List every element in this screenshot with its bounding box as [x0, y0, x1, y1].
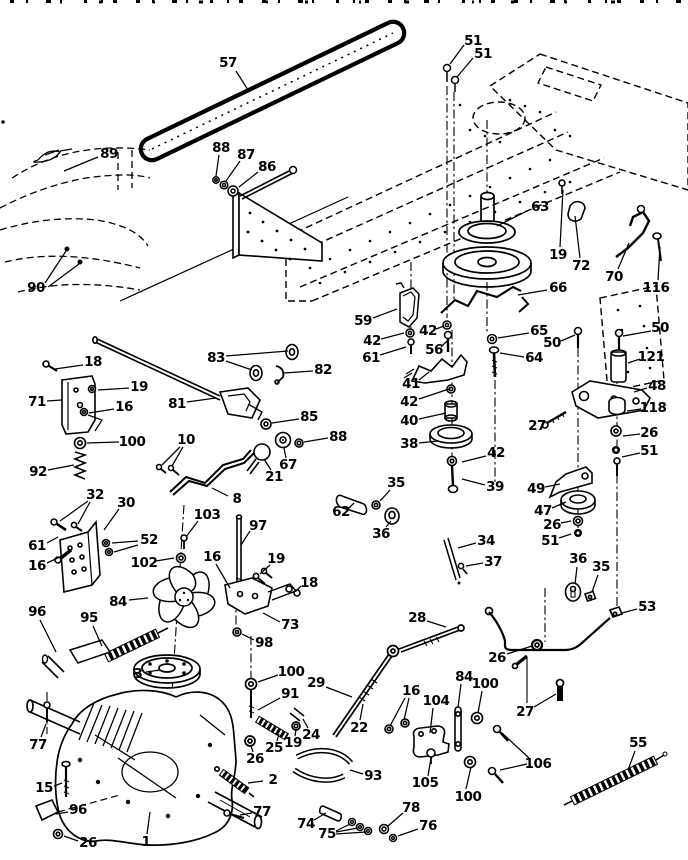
part-callout-86: 86	[258, 159, 276, 175]
part-callout-82: 82	[314, 362, 332, 378]
exploded-parts-diagram: 5751518990888786631972701166659426142566…	[0, 0, 688, 860]
leader-line-88	[216, 155, 219, 176]
part-callout-87: 87	[237, 147, 255, 163]
part-callout-50: 50	[651, 320, 669, 336]
bracket-71	[62, 376, 95, 434]
part-callout-32: 32	[86, 487, 104, 503]
rod-34-group	[444, 538, 467, 585]
part-callout-18: 18	[84, 354, 102, 370]
part-callout-51: 51	[541, 533, 559, 549]
part-callout-71: 71	[28, 394, 46, 410]
leader-line-26	[561, 521, 571, 523]
belt-keeper-59	[400, 288, 419, 327]
leader-line-77	[41, 724, 46, 737]
leader-line-103	[186, 521, 198, 537]
leader-line-74	[314, 813, 326, 820]
leader-line-87	[226, 161, 240, 181]
part-callout-95: 95	[80, 610, 98, 626]
part-callout-26: 26	[246, 751, 264, 767]
part-callout-100: 100	[455, 789, 482, 805]
part-callout-70: 70	[605, 269, 623, 285]
leader-line-81	[187, 398, 216, 402]
leader-line-35	[380, 490, 390, 501]
leader-line-27	[546, 418, 556, 423]
part-callout-28: 28	[408, 610, 426, 626]
rod-53	[489, 612, 610, 650]
part-callout-91: 91	[281, 686, 299, 702]
part-callout-42: 42	[487, 445, 505, 461]
part-callout-36: 36	[372, 526, 390, 542]
rod-86-end	[290, 167, 297, 174]
leader-line-2	[248, 781, 263, 783]
part-callout-25: 25	[265, 740, 283, 756]
part-callout-52: 52	[140, 532, 158, 548]
leader-line-26	[623, 434, 640, 436]
part-callout-62: 62	[332, 504, 350, 520]
leader-line-96	[40, 620, 56, 652]
bracket-30-group	[51, 519, 113, 592]
leader-line-32	[78, 502, 90, 524]
part-callout-56: 56	[425, 342, 443, 358]
part-callout-27: 27	[528, 418, 546, 434]
part-callout-90: 90	[27, 280, 45, 296]
part-callout-100: 100	[472, 676, 499, 692]
part-callout-104: 104	[423, 693, 450, 709]
part-callout-22: 22	[350, 720, 368, 736]
part-callout-38: 38	[400, 436, 418, 452]
part-callout-34: 34	[477, 533, 495, 549]
part-callout-49: 49	[527, 481, 545, 497]
part-callout-89: 89	[100, 146, 118, 162]
leader-line-73	[263, 613, 280, 622]
rod-66	[441, 287, 521, 313]
leader-line-16	[404, 698, 409, 720]
leader-line-39	[462, 479, 485, 485]
leader-line-90	[48, 264, 79, 287]
leader-line-98	[242, 634, 254, 640]
leader-line-100	[466, 767, 471, 789]
part-callout-61: 61	[28, 538, 46, 554]
part-callout-103: 103	[194, 507, 221, 523]
part-callout-19: 19	[549, 247, 567, 263]
part-callout-42: 42	[400, 394, 418, 410]
hardware-86-87-88	[213, 167, 297, 200]
part-callout-42: 42	[419, 323, 437, 339]
leader-line-27	[534, 694, 556, 707]
leader-line-85	[272, 419, 299, 423]
leader-line-42	[419, 389, 449, 399]
part-callout-84: 84	[455, 669, 473, 685]
part-callout-74: 74	[297, 816, 315, 832]
leader-line-83	[226, 361, 252, 370]
part-callout-39: 39	[486, 479, 504, 495]
leader-line-102	[156, 558, 174, 561]
part-callout-15: 15	[35, 780, 53, 796]
part-callout-42: 42	[363, 333, 381, 349]
leader-line-89	[64, 157, 98, 171]
leader-line-37	[466, 563, 483, 566]
part-callout-30: 30	[117, 495, 135, 511]
part-callout-40: 40	[400, 413, 418, 429]
leader-line-40	[419, 413, 446, 419]
part-callout-26: 26	[488, 650, 506, 666]
part-callout-16: 16	[28, 558, 46, 574]
part-callout-93: 93	[364, 768, 382, 784]
part-callout-85: 85	[300, 409, 318, 425]
part-callout-10: 10	[177, 432, 195, 448]
part-callout-96: 96	[69, 802, 87, 818]
leader-line-59	[373, 309, 397, 318]
hood-fastener-dot	[78, 260, 83, 265]
leader-line-22	[360, 704, 363, 720]
spring-92	[75, 452, 85, 479]
part-callout-63: 63	[531, 199, 549, 215]
part-callout-2: 2	[269, 772, 278, 788]
nut-35	[585, 592, 596, 602]
bolt-116	[653, 233, 661, 239]
part-callout-84: 84	[109, 594, 127, 610]
part-callout-88: 88	[212, 140, 230, 156]
leader-line-84	[129, 598, 148, 600]
stray-mark	[1, 120, 5, 124]
transaxle-1	[27, 690, 262, 845]
leader-line-61	[47, 537, 58, 543]
leader-line-42	[381, 333, 404, 339]
brake-linkage-group	[385, 707, 508, 783]
leader-line-8	[212, 488, 228, 496]
part-callout-105: 105	[412, 775, 439, 791]
part-callout-116: 116	[643, 280, 670, 296]
part-callout-98: 98	[255, 635, 273, 651]
part-callout-50: 50	[543, 335, 561, 351]
leader-line-76	[398, 829, 418, 836]
engine-pulley-63	[443, 193, 531, 288]
part-callout-24: 24	[302, 727, 320, 743]
rod-22-eye	[388, 646, 399, 657]
clip-72	[568, 202, 585, 221]
leader-line-29	[326, 687, 352, 697]
leader-line-51	[450, 45, 464, 64]
part-callout-92: 92	[29, 464, 47, 480]
part-callout-16: 16	[402, 683, 420, 699]
leader-line-71	[47, 400, 62, 401]
leader-line-63	[497, 210, 529, 226]
frame-assembly	[120, 54, 688, 392]
leader-line-36	[575, 567, 577, 584]
leader-line-106	[500, 764, 527, 770]
part-callout-8: 8	[233, 491, 242, 507]
part-callout-53: 53	[638, 599, 656, 615]
part-callout-19: 19	[130, 379, 148, 395]
leader-line-32	[60, 501, 88, 521]
leader-line-75	[336, 832, 366, 834]
part-callout-102: 102	[131, 555, 158, 571]
part-callout-78: 78	[402, 800, 420, 816]
leader-line-52	[114, 545, 138, 552]
leader-line-53	[622, 609, 637, 613]
part-callout-67: 67	[279, 457, 297, 473]
leader-line-65	[498, 333, 529, 338]
bracket-71-group	[43, 361, 102, 479]
part-callout-3: 3	[134, 666, 143, 682]
leader-line-83	[226, 351, 288, 356]
leader-line-50	[561, 335, 575, 341]
part-callout-48: 48	[648, 378, 666, 394]
leader-line-50	[623, 331, 651, 336]
bolt-27-lower	[557, 685, 563, 701]
part-callout-61: 61	[362, 350, 380, 366]
leader-line-61	[380, 347, 406, 355]
leader-line-90	[45, 251, 66, 283]
part-callout-51: 51	[640, 443, 658, 459]
leader-line-52	[112, 541, 138, 543]
hardware-19-72-70-116	[559, 180, 661, 261]
part-callout-96: 96	[28, 604, 46, 620]
leader-line-51	[622, 453, 640, 457]
leader-line-28	[427, 621, 446, 627]
leader-line-91	[258, 698, 280, 710]
leader-line-64	[500, 353, 524, 357]
leader-line-78	[388, 813, 403, 826]
leader-line-100	[478, 691, 482, 713]
part-callout-26: 26	[79, 835, 97, 851]
leader-line-16	[216, 564, 230, 588]
idler-36	[385, 508, 399, 524]
part-callout-81: 81	[168, 396, 186, 412]
leader-line-93	[350, 770, 363, 774]
leader-line-42	[462, 456, 486, 462]
leader-line-19	[560, 190, 563, 247]
leader-line-66	[518, 290, 547, 295]
leader-line-35	[592, 575, 598, 592]
leader-line-105	[428, 758, 431, 776]
hood-fastener-dot	[65, 247, 70, 252]
part-callout-72: 72	[572, 258, 590, 274]
leader-line-82	[284, 371, 313, 373]
part-callout-77: 77	[253, 804, 271, 820]
part-callout-19: 19	[284, 735, 302, 751]
bolts-51-top	[444, 65, 459, 93]
bolt-39	[452, 466, 453, 486]
part-callout-36: 36	[569, 551, 587, 567]
v-idler-47	[561, 491, 595, 509]
part-callout-51: 51	[474, 46, 492, 62]
part-callout-121: 121	[638, 349, 665, 365]
part-callout-106: 106	[525, 756, 552, 772]
leader-line-100	[258, 675, 278, 682]
part-callout-100: 100	[119, 434, 146, 450]
part-callout-35: 35	[592, 559, 610, 575]
leader-line-70	[618, 243, 629, 269]
part-callout-88: 88	[329, 429, 347, 445]
part-callout-76: 76	[419, 818, 437, 834]
part-callout-16: 16	[203, 549, 221, 565]
parts-diagram-page: 5751518990888786631972701166659426142566…	[0, 0, 688, 860]
bracket-96	[36, 800, 58, 820]
part-callout-41: 41	[402, 376, 420, 392]
part-callout-73: 73	[281, 617, 299, 633]
shift-knob-21	[254, 444, 270, 460]
leader-line-51	[457, 58, 473, 77]
leader-line-34	[458, 543, 476, 548]
leader-line-92	[48, 465, 74, 470]
part-callout-77: 77	[29, 737, 47, 753]
part-callout-16: 16	[115, 399, 133, 415]
shifter-housing	[220, 388, 260, 418]
bearing-83	[250, 366, 262, 381]
part-callout-59: 59	[354, 313, 372, 329]
bolt-105	[427, 749, 435, 757]
leader-line-30	[104, 509, 119, 530]
part-callout-27: 27	[516, 704, 534, 720]
leader-line-57	[236, 71, 248, 90]
drive-belt-57	[141, 22, 404, 160]
part-callout-29: 29	[307, 675, 325, 691]
leader-line-86	[239, 172, 258, 187]
part-callout-19: 19	[267, 551, 285, 567]
leader-line-72	[575, 216, 580, 258]
bolt-64	[490, 347, 499, 353]
part-callout-35: 35	[387, 475, 405, 491]
part-callout-64: 64	[525, 350, 543, 366]
fan-84	[150, 563, 218, 631]
rod-70	[616, 212, 649, 257]
bearing-83	[286, 345, 298, 360]
leader-line-38	[419, 441, 438, 443]
part-callout-18: 18	[300, 575, 318, 591]
part-callout-118: 118	[640, 400, 667, 416]
part-callout-26: 26	[640, 425, 658, 441]
leader-line-51	[559, 534, 571, 538]
leader-line-18	[55, 365, 83, 369]
part-callout-55: 55	[629, 735, 647, 751]
leader-line-19	[98, 388, 129, 390]
part-callout-37: 37	[484, 554, 502, 570]
part-callout-66: 66	[549, 280, 567, 296]
spring-55	[564, 752, 667, 805]
part-callout-97: 97	[249, 518, 267, 534]
part-callout-57: 57	[219, 55, 237, 71]
leader-line-106	[502, 733, 529, 758]
leader-line-88	[304, 438, 328, 442]
part-callout-83: 83	[207, 350, 225, 366]
part-callout-26: 26	[543, 517, 561, 533]
part-callout-100: 100	[278, 664, 305, 680]
leader-line-84	[458, 684, 461, 707]
cropped-text-marks	[10, 2, 682, 3]
washer-65	[488, 335, 497, 344]
leader-line-42	[436, 326, 444, 329]
part-callout-1: 1	[142, 834, 151, 850]
part-callout-75: 75	[318, 826, 336, 842]
hood-sketch	[0, 148, 150, 292]
leader-line-100	[87, 442, 119, 443]
